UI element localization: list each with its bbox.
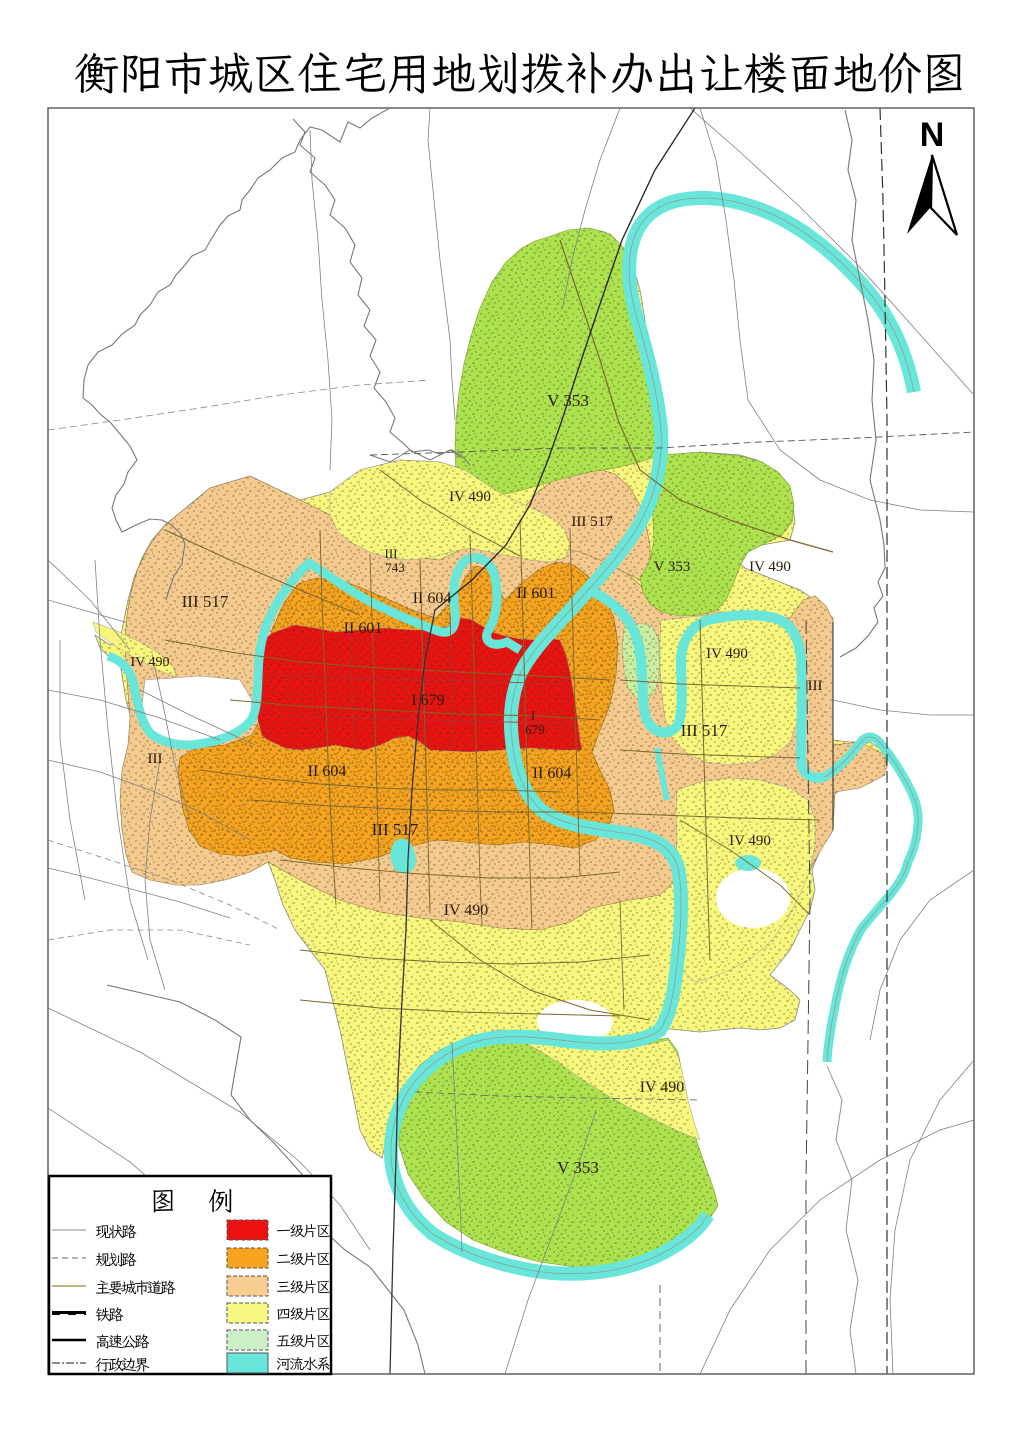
svg-text:II 601: II 601 [344, 620, 383, 637]
svg-text:I 679: I 679 [411, 692, 444, 709]
svg-text:III 517: III 517 [571, 514, 613, 530]
svg-text:IV 490: IV 490 [706, 646, 748, 662]
svg-text:V 353: V 353 [654, 559, 691, 575]
svg-text:II 601: II 601 [517, 585, 556, 602]
svg-text:N: N [920, 116, 945, 154]
svg-text:III: III [808, 678, 823, 694]
svg-text:III 517: III 517 [372, 820, 419, 839]
svg-text:IV 490: IV 490 [640, 1079, 685, 1096]
svg-text:III 517: III 517 [182, 592, 229, 611]
svg-text:679: 679 [525, 722, 545, 737]
svg-text:II 604: II 604 [533, 765, 572, 782]
svg-text:IV 490: IV 490 [130, 655, 169, 670]
svg-text:IV 490: IV 490 [749, 559, 791, 575]
svg-text:II 604: II 604 [308, 763, 347, 780]
svg-text:V 353: V 353 [557, 1158, 599, 1177]
svg-text:IV 490: IV 490 [729, 833, 771, 849]
svg-text:III 517: III 517 [681, 721, 728, 740]
svg-text:III: III [148, 751, 163, 767]
svg-text:743: 743 [385, 560, 405, 575]
svg-text:IV 490: IV 490 [449, 489, 491, 505]
svg-text:IV 490: IV 490 [444, 902, 489, 919]
svg-text:I: I [531, 708, 535, 723]
svg-text:III: III [385, 546, 398, 561]
svg-text:V 353: V 353 [547, 391, 589, 410]
svg-text:II 604: II 604 [413, 590, 452, 607]
